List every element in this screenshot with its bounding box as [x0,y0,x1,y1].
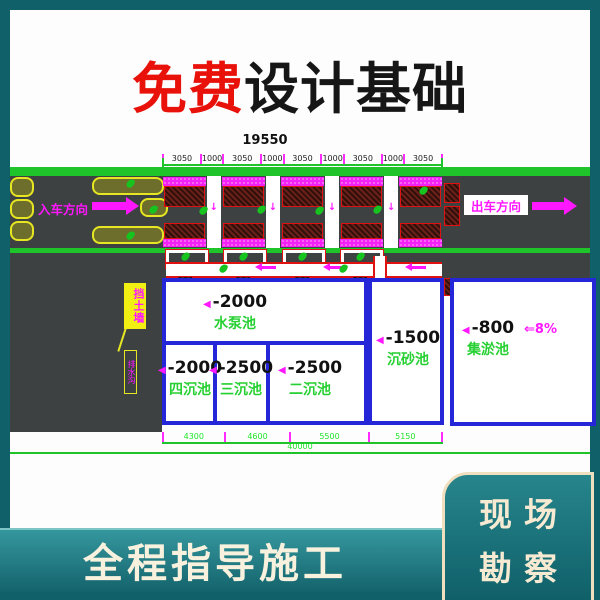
bay-wall: ↓ [325,176,340,248]
dim-segment: 5500 [291,432,367,442]
bay-wall: ↓ [207,176,222,248]
bay-cap [281,239,324,247]
bay-wall: ↓ [266,176,281,248]
marker-icon: ◀ [376,335,384,346]
dim-segment: 4300 [164,432,224,442]
bay-hatch [223,223,264,239]
corner-badge: 现场 勘察 [442,472,594,600]
pool-label-sludge: ◀-800 集淤池 [448,318,528,359]
entry-direction-arrow [92,202,126,210]
bay-cap [163,177,206,186]
dim-segment: 1000 [383,154,403,164]
bay-hatch [223,186,264,207]
dim-segment: 1000 [322,154,342,164]
kerb-block [10,221,34,241]
bay-hatch [282,186,323,207]
marker-icon: ◀ [203,299,211,310]
road-top-edge [10,167,590,176]
drain-trench-label: 排水沟 [124,350,137,394]
title-rest: 设计基础 [244,57,468,121]
dim-segment: 3050 [164,154,200,164]
exit-direction-arrow [532,202,564,210]
bay-hatch [341,223,382,239]
down-arrow: ↓ [387,202,395,213]
bay-cap [340,177,383,186]
overall-bottom-dimension: 40000 [250,442,350,451]
promo-image: 免费设计基础 19550 3050 1000 3050 1000 3050 10… [0,0,600,600]
dim-segment: 3050 [345,154,381,164]
bay-hatch [282,223,323,239]
marker-icon: ◀ [158,365,166,376]
bay-hatch [164,186,205,207]
kerb-block [10,177,34,197]
pool-label-pump: ◀-2000 水泵池 [170,292,300,333]
corner-badge-line2: 勘察 [467,542,569,590]
bay-cap [281,177,324,186]
dim-segment: 4600 [226,432,290,442]
exit-direction-label: 出车方向 [471,196,521,215]
exit-label-box: 出车方向 [464,195,528,215]
flow-arrow-left [412,266,426,269]
bay-cap [222,239,265,247]
page-title: 免费设计基础 [0,44,600,124]
retaining-wall-callout: 挡土墙 [124,283,146,329]
dim-segment: 3050 [224,154,260,164]
overall-dimension-line [10,452,590,454]
entry-direction-label: 入车方向 [38,199,88,218]
bay-cap [399,177,442,186]
slope-annotation: ⇐8% [524,322,557,337]
down-arrow: ↓ [269,202,277,213]
bay-cap [399,239,442,247]
corner-badge-line1: 现场 [467,488,569,536]
marker-icon: ◀ [278,365,286,376]
bay-hatch [341,186,382,207]
bay-cap [340,239,383,247]
dim-segment: 5150 [370,432,441,442]
bay-cap [163,239,206,247]
dim-segment: 1000 [262,154,282,164]
pool-label-second: ◀-2500 二沉池 [270,358,350,399]
bay-hatch [444,183,460,203]
down-arrow: ↓ [328,202,336,213]
pool-label-third: ◀-2500 三沉池 [201,358,281,399]
pool-label-sand: ◀-1500 沉砂池 [368,328,448,369]
footer-band-text: 全程指导施工 [0,530,430,590]
flow-arrow-left [262,266,276,269]
bay-hatch [164,223,205,239]
top-dimension-row: 3050 1000 3050 1000 3050 1000 3050 1000 … [162,148,443,166]
dim-segment: 1000 [202,154,222,164]
title-highlight: 免费 [132,57,244,121]
kerb-block [10,199,34,219]
dim-segment: 3050 [405,154,441,164]
bay-hatch [400,223,441,239]
dim-segment: 3050 [285,154,321,164]
bay-wall: ↓ [384,176,399,248]
marker-icon: ◀ [209,365,217,376]
dim-tick [441,432,443,442]
top-total-dimension: 19550 [210,133,320,148]
down-arrow: ↓ [210,202,218,213]
marker-icon: ◀ [462,325,470,336]
bay-hatch [444,206,460,226]
bay-cap [222,177,265,186]
